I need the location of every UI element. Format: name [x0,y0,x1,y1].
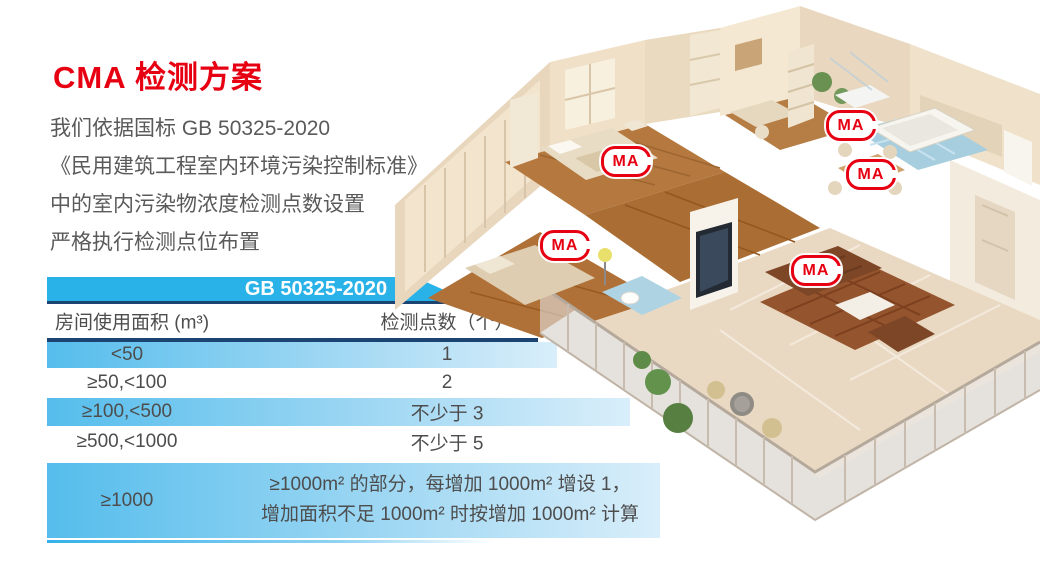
cma-badge: MA [540,230,590,261]
intro-paragraph: 我们依据国标 GB 50325-2020 《民用建筑工程室内环境污染控制标准》 … [50,110,428,262]
cma-badge: MA [791,255,841,286]
cma-badge-label: MA [613,153,640,171]
floorplan-illustration [390,0,1040,530]
cell-area: ≥500,<1000 [47,431,207,453]
intro-line-1: 我们依据国标 GB 50325-2020 [50,110,428,148]
intro-line-3: 中的室内污染物浓度检测点数设置 [50,186,428,224]
cell-area: <50 [47,344,207,366]
cma-badge-label: MA [803,262,830,280]
cma-badge-label: MA [838,117,865,135]
page: CMA 检测方案 我们依据国标 GB 50325-2020 《民用建筑工程室内环… [0,0,1040,562]
page-title: CMA 检测方案 [53,52,263,97]
intro-line-2: 《民用建筑工程室内环境污染控制标准》 [50,148,428,186]
cma-badge-label: MA [552,237,579,255]
cma-badge-label: MA [858,166,885,184]
cma-badge: MA [826,110,876,141]
column-header-area: 房间使用面积 (m³) [55,308,209,335]
cell-area: ≥1000 [47,490,207,512]
cma-badge: MA [846,159,896,190]
cell-area: ≥100,<500 [47,401,207,423]
intro-line-4: 严格执行检测点位布置 [50,224,428,262]
floorplan-svg [390,0,1040,530]
cma-badge: MA [601,146,651,177]
cell-area: ≥50,<100 [47,372,207,394]
table-bottom-rule [47,540,493,543]
